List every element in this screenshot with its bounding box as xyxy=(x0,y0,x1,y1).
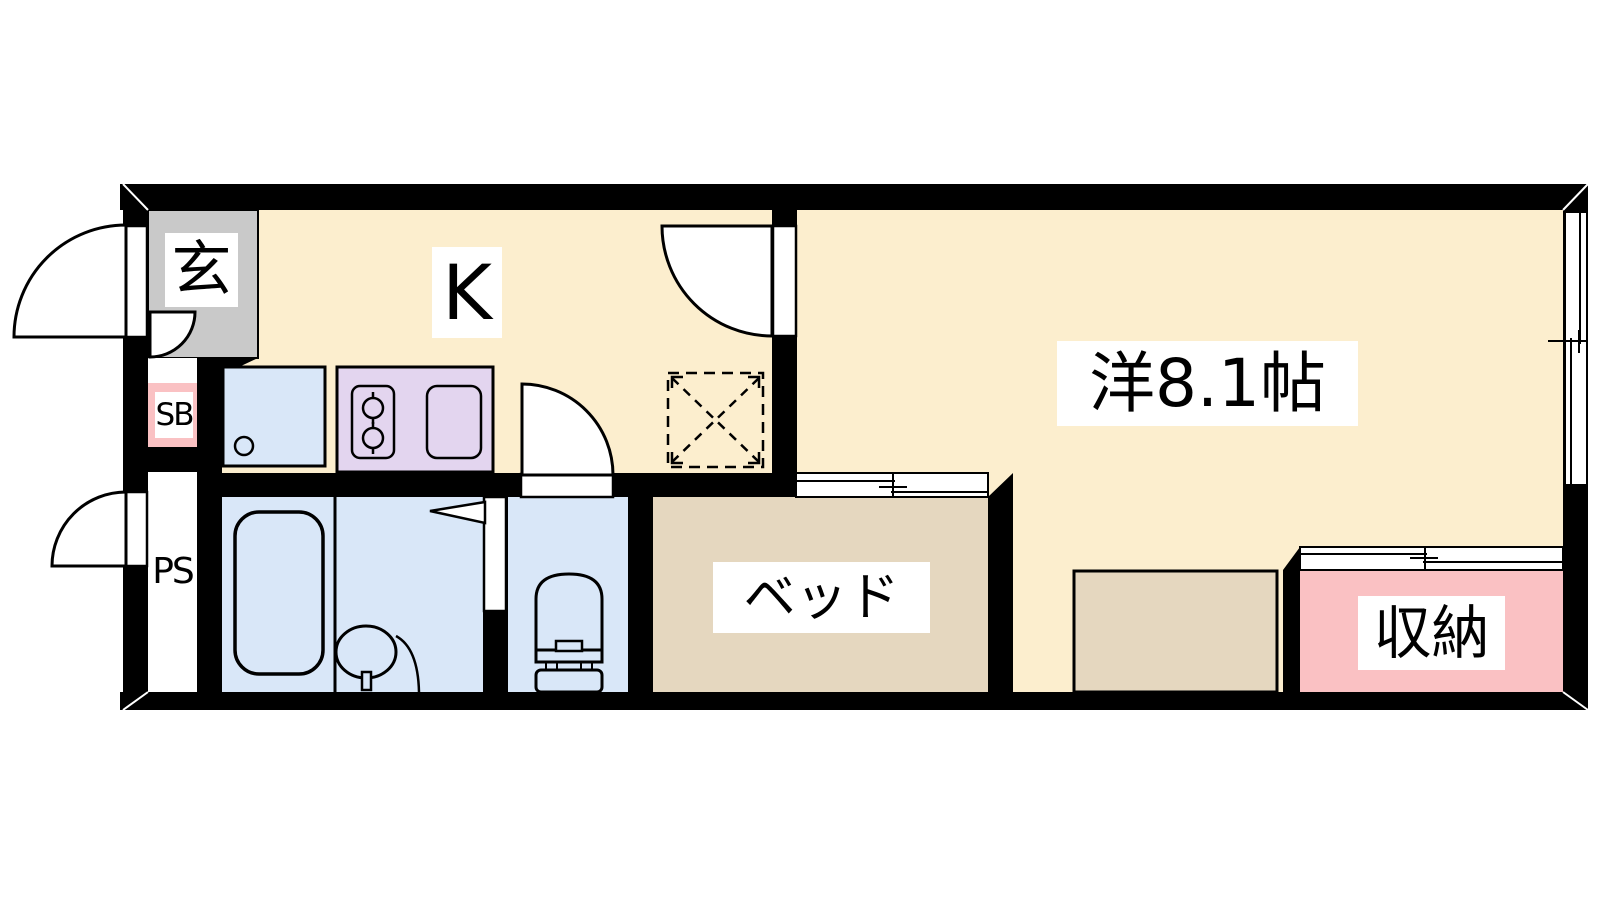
bed-platform xyxy=(1074,571,1277,692)
entry-door-swing xyxy=(14,225,126,337)
toilet-seat-notch xyxy=(556,641,582,651)
wall-sb-ps-divider xyxy=(148,447,197,472)
wall-kitchen-bath xyxy=(222,473,798,497)
bathroom-floor xyxy=(222,497,483,692)
stove-counter xyxy=(337,367,493,472)
floor-plan-page: 玄 SB PS K ベッド 洋8.1帖 収納 xyxy=(0,0,1600,900)
bathroom-door-leaf xyxy=(484,497,506,611)
wall-bottom xyxy=(120,692,1588,710)
genkan-label: 玄 xyxy=(165,233,238,307)
western-room-label: 洋8.1帖 xyxy=(1057,341,1358,426)
floor-plan-drawing xyxy=(0,0,1600,900)
pipe-space-label: PS xyxy=(148,549,197,595)
shoe-box-label: SB xyxy=(155,392,193,438)
wall-bed-left xyxy=(628,473,653,692)
toilet-doorway xyxy=(521,474,613,497)
washbasin-faucet xyxy=(362,672,371,690)
storage-sliding-door xyxy=(1300,547,1563,570)
bed-label: ベッド xyxy=(713,562,930,633)
ps-door-swing xyxy=(52,492,126,566)
wall-kitchen-room-bottom xyxy=(772,337,797,473)
wall-storage-left xyxy=(1283,547,1300,692)
wall-bed-right xyxy=(988,473,1013,692)
kitchen-room-doorway xyxy=(773,226,796,336)
corridor-strip xyxy=(148,358,197,383)
kitchen-sink xyxy=(223,367,325,466)
wall-top xyxy=(120,184,1588,210)
wall-kitchen-room-top xyxy=(772,210,797,226)
bed-sliding-partition xyxy=(796,473,988,497)
storage-label: 収納 xyxy=(1358,596,1505,670)
wall-corridor-right xyxy=(197,358,222,692)
kitchen-label: K xyxy=(432,247,502,338)
